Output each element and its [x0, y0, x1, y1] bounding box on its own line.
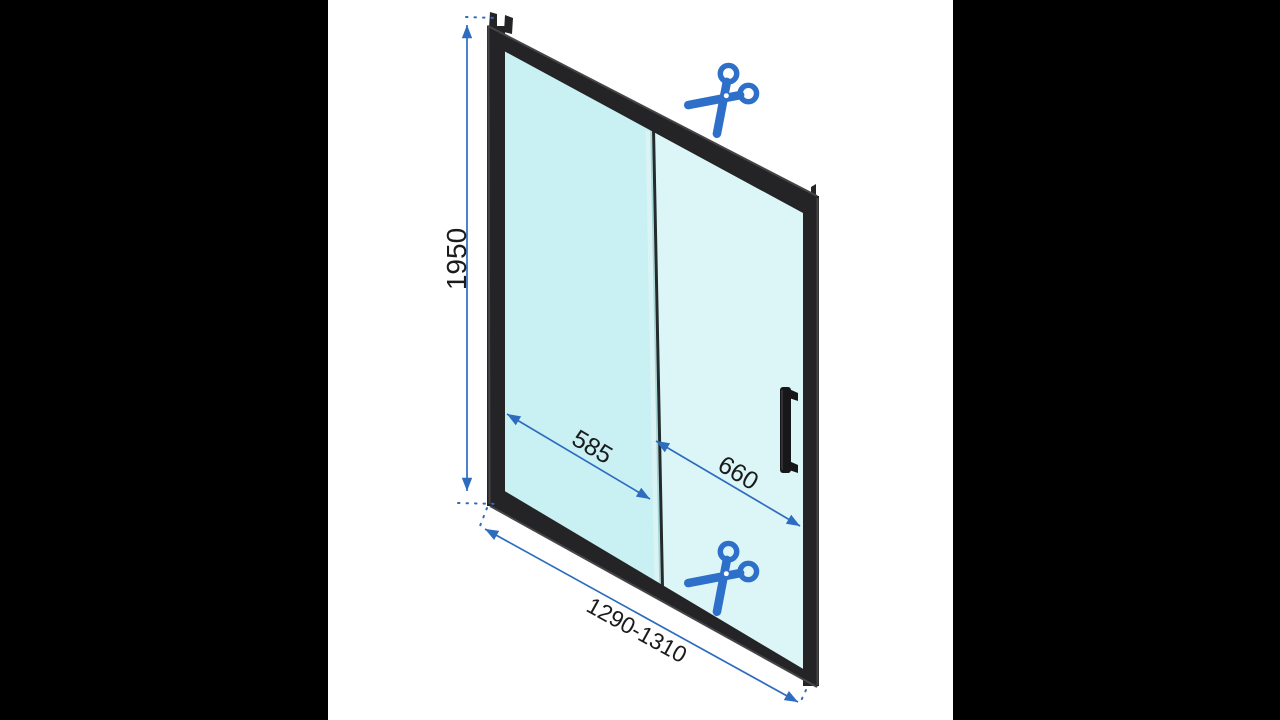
glass-panels — [503, 50, 805, 670]
scissors-icon-top — [687, 62, 760, 135]
product-image: 1950 585 660 1290-1310 — [0, 0, 1280, 720]
frame-corner-tab-top-left-a — [489, 12, 497, 28]
shower-door-diagram: 1950 585 660 1290-1310 — [328, 0, 953, 720]
letterbox-right-band — [953, 0, 1280, 720]
letterbox-left-band — [0, 0, 328, 720]
frame-corner-tab-top-right — [811, 184, 816, 199]
frame-corner-tab-top-left-b — [504, 15, 513, 34]
height-dimension-label: 1950 — [441, 228, 472, 290]
